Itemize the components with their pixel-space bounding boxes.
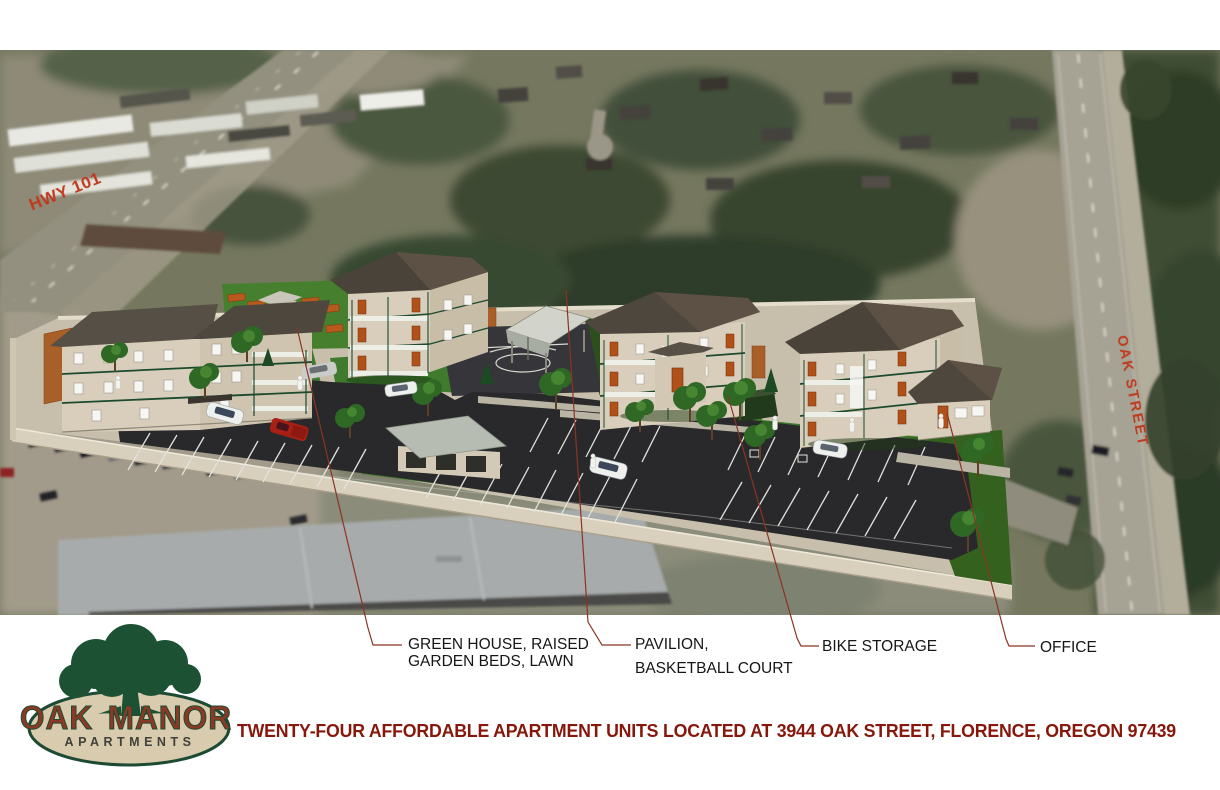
aerial-photo xyxy=(0,35,1220,625)
callout-office: OFFICE xyxy=(1040,640,1097,657)
building-1 xyxy=(50,300,330,432)
callout-greenhouse-line1: GREEN HOUSE, RAISED xyxy=(408,637,589,654)
building-3 xyxy=(585,292,760,430)
callout-bike-storage: BIKE STORAGE xyxy=(822,639,937,656)
logo-word-oak: OAK xyxy=(20,699,93,737)
site-plan-board: HWY 101 OAK STREET GREEN HOUSE, RAISED G… xyxy=(0,0,1220,790)
logo-subtitle: APARTMENTS xyxy=(30,735,230,749)
logo-word-manor: MANOR xyxy=(108,699,232,737)
logo-title: OAK MANOR xyxy=(30,699,222,737)
callout-pavilion-line2: BASKETBALL COURT xyxy=(635,661,793,678)
tagline: TWENTY-FOUR AFFORDABLE APARTMENT UNITS L… xyxy=(237,721,1192,742)
callout-greenhouse: GREEN HOUSE, RAISED GARDEN BEDS, LAWN xyxy=(408,637,589,670)
callout-pavilion: PAVILION, xyxy=(635,637,709,654)
callout-greenhouse-line2: GARDEN BEDS, LAWN xyxy=(408,654,589,671)
aerial-rendering xyxy=(0,0,1220,790)
